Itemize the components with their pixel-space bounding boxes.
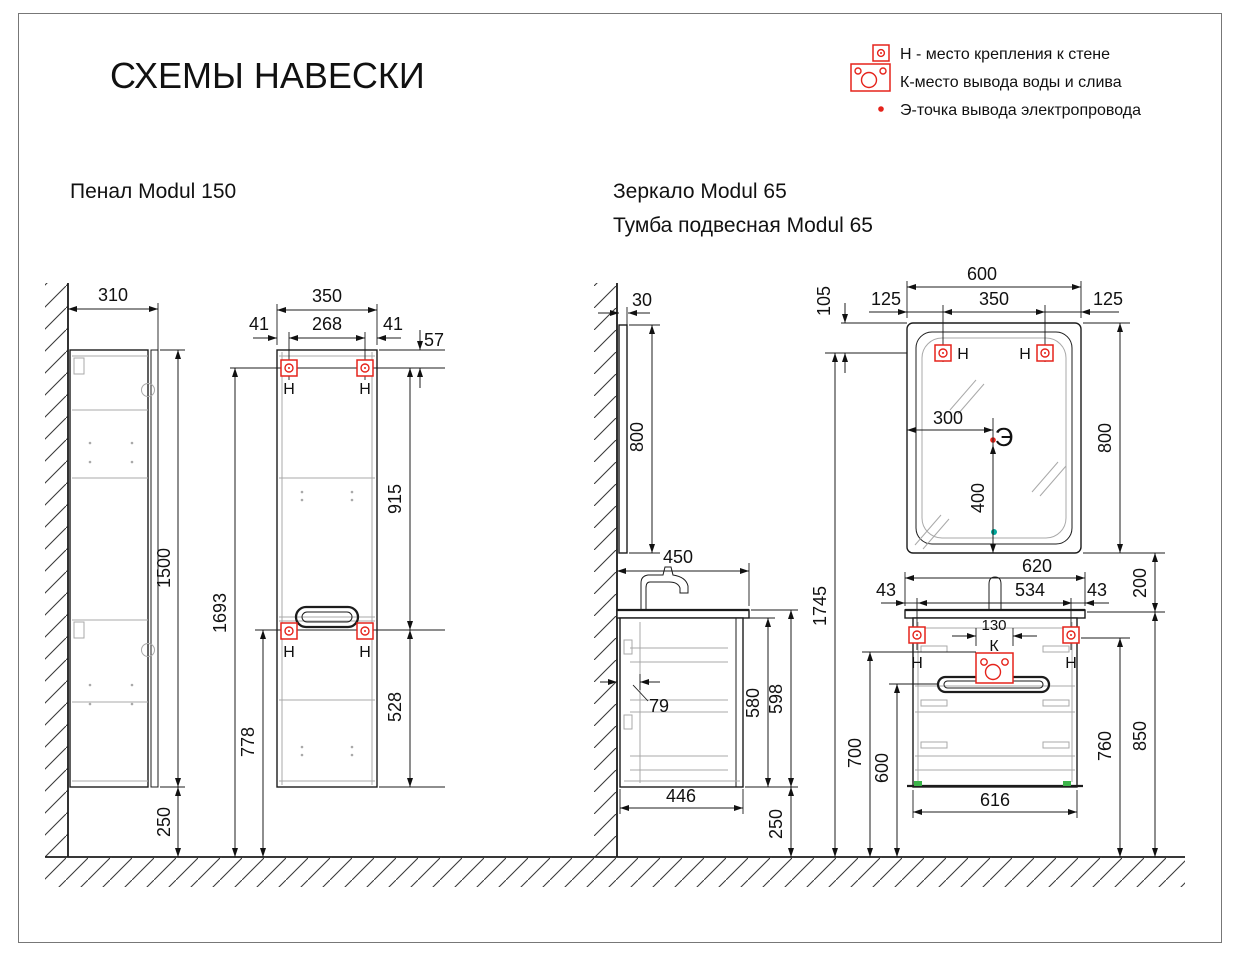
mount-label: Н — [1065, 655, 1077, 672]
dim-vanity-outer-height: 598 — [766, 684, 786, 714]
page-title: СХЕМЫ НАВЕСКИ — [110, 55, 425, 96]
dim-floor-to-mount: 760 — [1095, 731, 1115, 761]
electric-point-icon — [878, 106, 884, 112]
dim-electric-from-left: 300 — [933, 408, 963, 428]
mirror-section-title: Зеркало Modul 65 — [613, 180, 787, 203]
dim-pencase-edge-left: 41 — [249, 314, 269, 334]
dim-pencase-width: 350 — [312, 286, 342, 306]
dim-mirror-top-to-mount: 105 — [814, 286, 834, 316]
mount-label: Н — [911, 655, 923, 672]
right-wall — [594, 283, 617, 857]
dim-vanity-counter-depth: 450 — [663, 547, 693, 567]
water-outlet-icon — [851, 64, 890, 91]
dim-mirror-edge-left: 125 — [871, 289, 901, 309]
mount-label: Н — [957, 346, 969, 363]
dim-floor-to-mirror-mount: 1745 — [810, 586, 830, 626]
dim-floor-to-outlet-top: 700 — [845, 738, 865, 768]
mount-label: Н — [283, 381, 295, 398]
dim-pencase-mount-span: 268 — [312, 314, 342, 334]
dim-outlet-width: 130 — [981, 617, 1006, 634]
mount-label: Н — [283, 644, 295, 661]
pencase-section-title: Пенал Modul 150 — [70, 180, 236, 203]
dim-pencase-mount-to-mount: 915 — [385, 484, 405, 514]
electric-label: Э — [995, 422, 1014, 452]
dim-floor-to-counter: 850 — [1130, 721, 1150, 751]
dim-vanity-mount-span: 534 — [1015, 580, 1045, 600]
dim-vanity-body-depth: 446 — [666, 786, 696, 806]
mount-label: Н — [1019, 346, 1031, 363]
mount-label: Н — [359, 381, 371, 398]
dim-vanity-back-gap: 79 — [649, 696, 669, 716]
dim-pencase-depth: 310 — [98, 285, 128, 305]
dim-mirror-side-height: 800 — [627, 422, 647, 452]
dim-counter-width: 620 — [1022, 556, 1052, 576]
vanity-side-view — [617, 567, 749, 787]
dim-mirror-mount-span: 350 — [979, 289, 1009, 309]
legend: Н - место крепления к стене К-место выво… — [851, 45, 1141, 119]
legend-electric-label: Э-точка вывода электропровода — [900, 102, 1141, 119]
floor — [45, 857, 1185, 887]
vanity-foot-dot — [914, 781, 922, 786]
dim-mirror-depth: 30 — [632, 290, 652, 310]
dim-pencase-mount-to-bottom: 528 — [385, 692, 405, 722]
pencase-side-view — [70, 350, 158, 787]
mirror-touch-sensor-dot — [991, 529, 997, 535]
dim-vanity-edge-left: 43 — [876, 580, 896, 600]
vanity-foot-dot — [1063, 781, 1071, 786]
dim-pencase-floor-gap: 250 — [154, 807, 174, 837]
legend-mount-label: Н - место крепления к стене — [900, 46, 1110, 63]
dim-pencase-floor-to-top-mount: 1693 — [210, 593, 230, 633]
dim-pencase-edge-right: 41 — [383, 314, 403, 334]
legend-water-label: К-место вывода воды и слива — [900, 74, 1122, 91]
mounting-scheme-sheet: СХЕМЫ НАВЕСКИ Пенал Modul 150 Зеркало Mo… — [0, 0, 1240, 961]
dim-mirror-height: 800 — [1095, 423, 1115, 453]
dim-vanity-body-height: 580 — [743, 688, 763, 718]
dim-pencase-height: 1500 — [154, 548, 174, 588]
dim-floor-to-handle: 600 — [872, 753, 892, 783]
dim-electric-to-bottom: 400 — [968, 483, 988, 513]
faucet-front — [989, 577, 1001, 610]
left-wall — [45, 283, 68, 857]
dim-mirror-to-counter: 200 — [1130, 568, 1150, 598]
dim-pencase-top-to-mount: 57 — [424, 330, 444, 350]
dim-vanity-floor-gap: 250 — [766, 809, 786, 839]
mirror-side-view — [619, 325, 627, 553]
mount-point-icon — [873, 45, 889, 61]
pencase-front-view — [277, 350, 377, 787]
dim-vanity-body-width: 616 — [980, 790, 1010, 810]
vanity-section-title: Тумба подвесная Modul 65 — [613, 214, 873, 237]
scheme-drawing: СХЕМЫ НАВЕСКИ Пенал Modul 150 Зеркало Mo… — [0, 0, 1240, 961]
dim-mirror-edge-right: 125 — [1093, 289, 1123, 309]
dim-mirror-width: 600 — [967, 264, 997, 284]
faucet-side — [641, 567, 688, 610]
dim-vanity-edge-right: 43 — [1087, 580, 1107, 600]
dim-pencase-floor-to-lower-mount: 778 — [238, 727, 258, 757]
mount-label: Н — [359, 644, 371, 661]
